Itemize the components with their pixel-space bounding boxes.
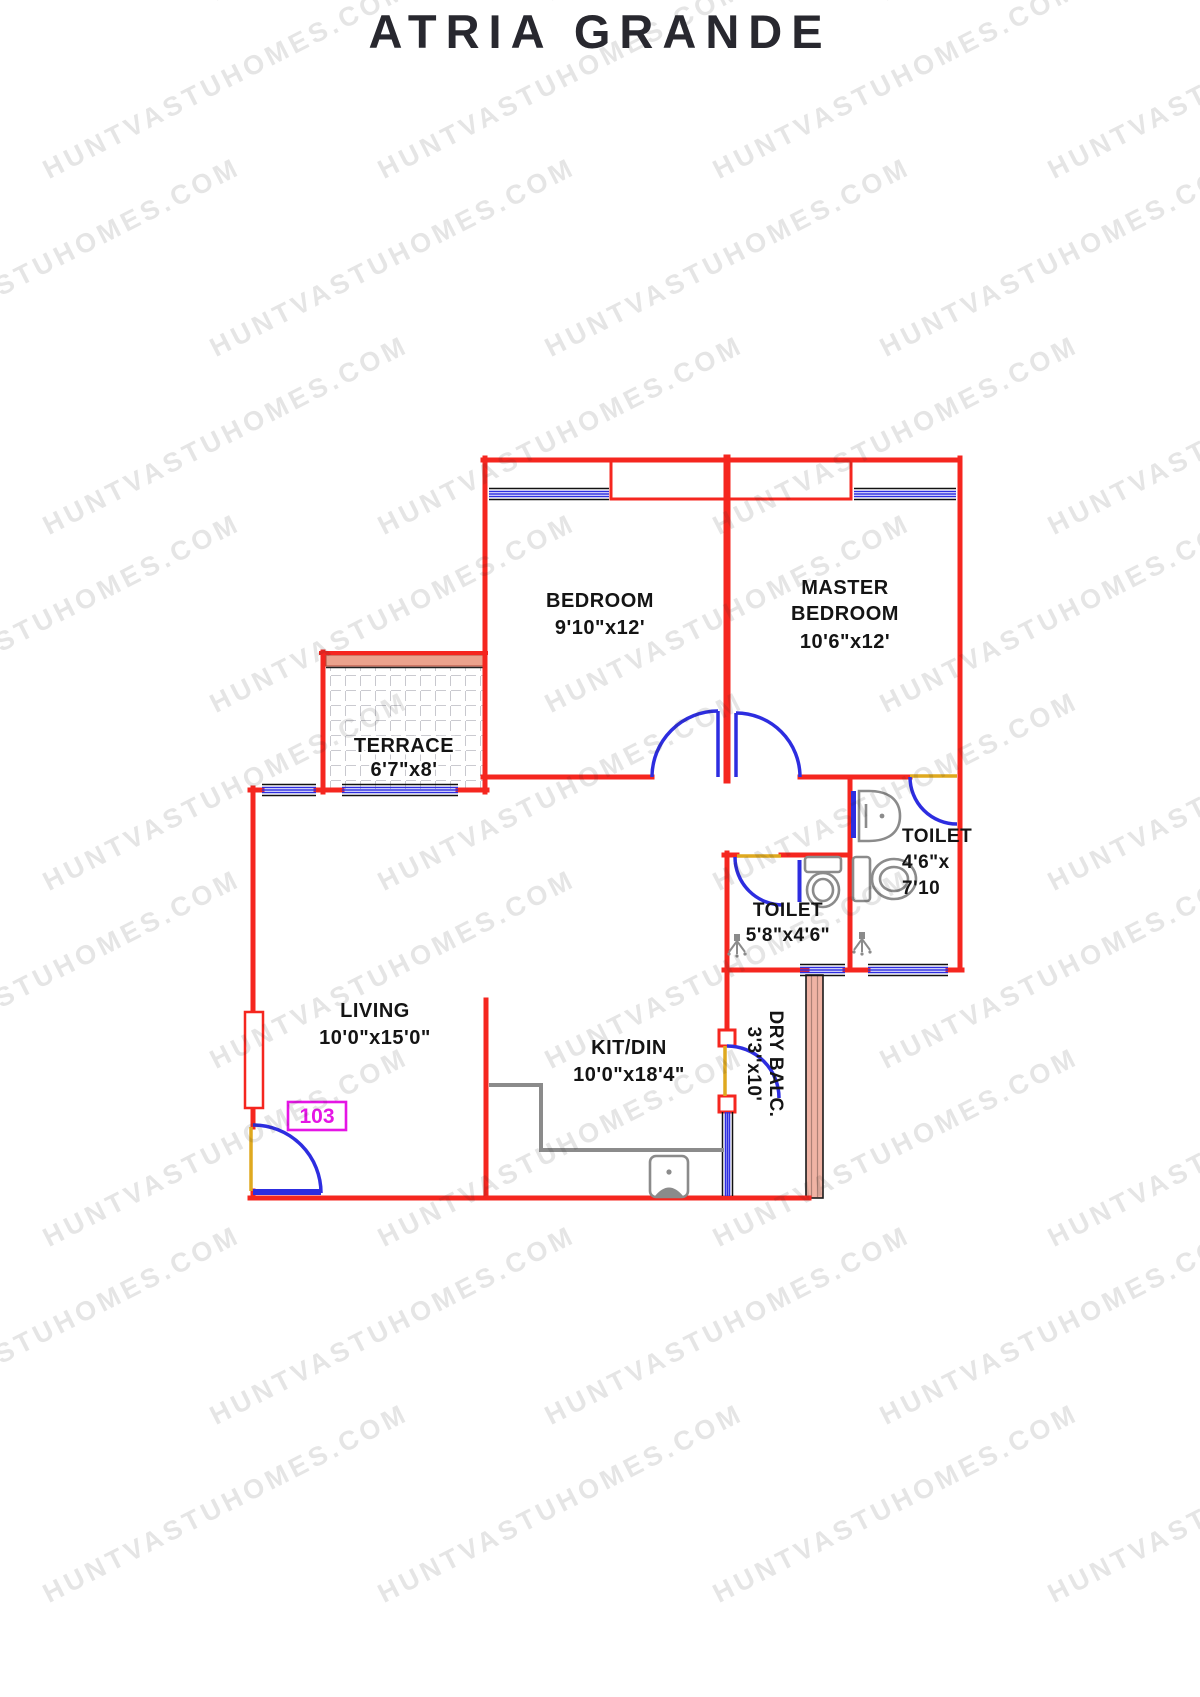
terrace-top-band — [326, 655, 483, 666]
living-wall-niche — [245, 1012, 263, 1108]
living-top-window-left — [262, 785, 316, 796]
toilet-common-shower-icon — [727, 934, 746, 958]
toilet-master-size-line1: 4'6"x — [902, 852, 950, 873]
page-title: ATRIA GRANDE — [0, 4, 1200, 59]
floor-plan: 103 BEDROOM 9'10"x12' MASTER BEDROOM 10'… — [0, 0, 1200, 1697]
terrace-label: TERRACE — [354, 735, 454, 757]
toilet-common-size: 5'8"x4'6" — [746, 925, 830, 946]
toilet-master-shower-icon — [852, 932, 871, 956]
kitchen-sink — [650, 1156, 688, 1197]
toilet-common-label: TOILET — [753, 900, 823, 921]
dry-balcony-label: DRY BALC. — [765, 1011, 786, 1118]
toilet-master-window — [868, 965, 948, 976]
toilet-master-door-arc — [910, 777, 957, 824]
unit-number-badge: 103 — [288, 1102, 346, 1130]
terrace-size: 6'7"x8' — [371, 759, 438, 781]
bedroom-window — [489, 489, 609, 500]
entrance-door-arc — [253, 1125, 321, 1193]
dry-balcony-hatched-wall — [806, 975, 823, 1198]
dry-balcony-label-group: DRY BALC. 3'3"x10' — [743, 1011, 786, 1118]
master-bedroom-label-line1: MASTER — [801, 577, 889, 599]
kitchen-drybalc-window — [723, 1112, 733, 1196]
floor-plan-page: ATRIA GRANDE — [0, 0, 1200, 1697]
master-bedroom-window — [854, 489, 956, 500]
kitchen-dining-size: 10'0"x18'4" — [573, 1064, 685, 1086]
bedroom-door-arc — [652, 711, 718, 777]
dry-balcony-size: 3'3"x10' — [743, 1027, 764, 1102]
toilet-common-door-arc — [735, 857, 783, 905]
toilet-common-window — [800, 965, 845, 976]
master-bedroom-label-line2: BEDROOM — [791, 603, 899, 625]
kitchen-dining-label: KIT/DIN — [591, 1037, 667, 1059]
master-bedroom-size: 10'6"x12' — [800, 631, 890, 653]
unit-number: 103 — [299, 1105, 334, 1128]
dry-balcony-door-jamb-top — [719, 1030, 735, 1046]
living-size: 10'0"x15'0" — [319, 1027, 431, 1049]
toilet-master-label: TOILET — [902, 826, 972, 847]
window-recess-jogs — [611, 462, 851, 499]
dry-balcony-door-jamb-bottom — [719, 1096, 735, 1112]
bedroom-size: 9'10"x12' — [555, 617, 645, 639]
master-bedroom-door-arc — [736, 713, 800, 777]
kitchen-counter — [489, 1085, 724, 1150]
bedroom-label: BEDROOM — [546, 590, 654, 612]
living-label: LIVING — [340, 1000, 410, 1022]
toilet-master-washbasin — [859, 791, 900, 841]
toilet-master-size-line2: 7'10 — [902, 878, 940, 899]
